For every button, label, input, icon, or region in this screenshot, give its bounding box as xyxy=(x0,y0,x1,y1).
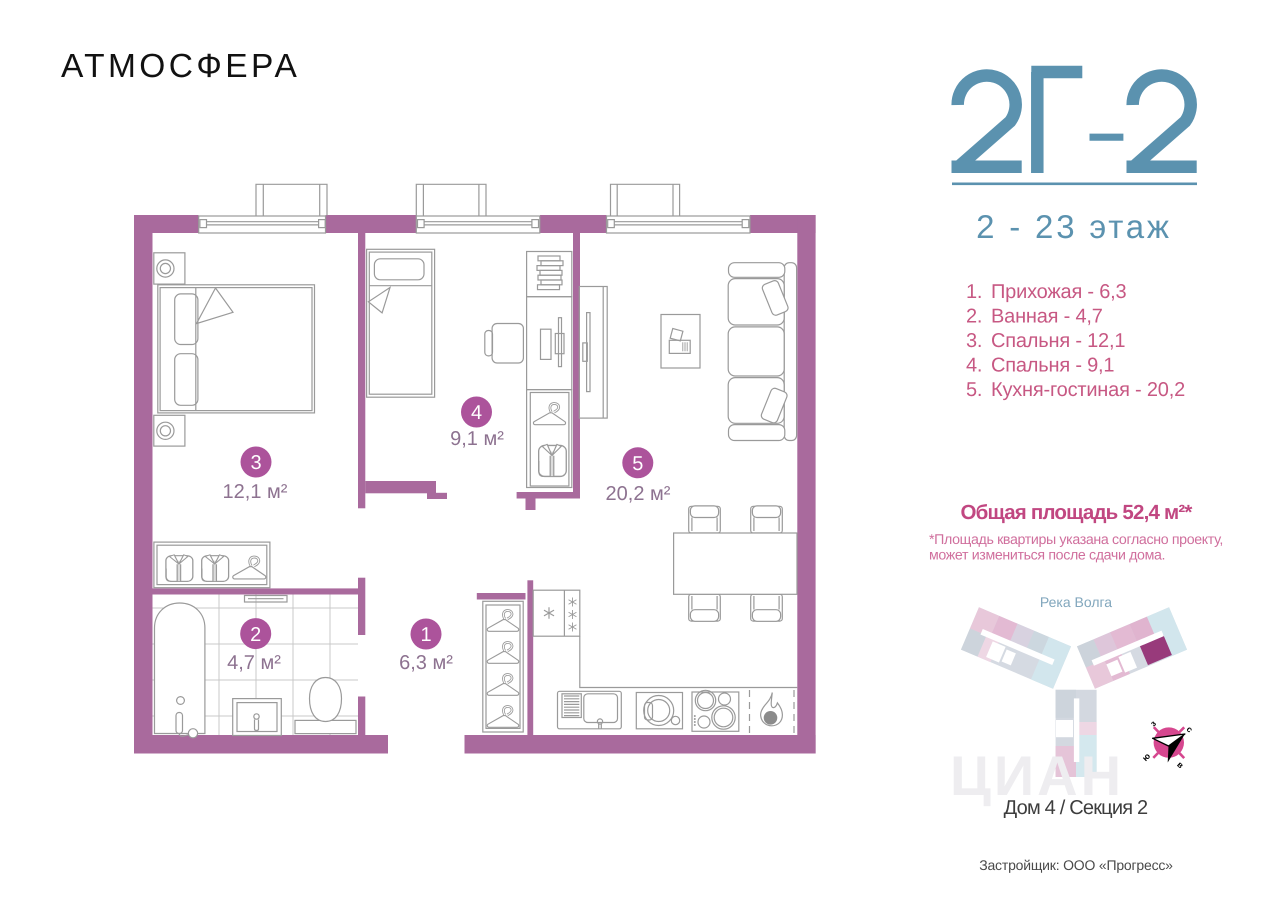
svg-text:4: 4 xyxy=(471,402,482,424)
svg-text:АТМОСФЕРА: АТМОСФЕРА xyxy=(61,48,300,85)
svg-text:Общая площадь 52,4 м²*: Общая площадь 52,4 м²* xyxy=(960,501,1192,524)
svg-text:12,1 м²: 12,1 м² xyxy=(223,481,288,503)
svg-text:Дом 4 / Секция 2: Дом 4 / Секция 2 xyxy=(1004,797,1148,819)
svg-text:2 - 23 этаж: 2 - 23 этаж xyxy=(976,208,1172,245)
svg-text:2: 2 xyxy=(250,624,261,646)
svg-text:3: 3 xyxy=(250,452,261,474)
svg-text:5.Кухня-гостиная - 20,2: 5.Кухня-гостиная - 20,2 xyxy=(966,379,1185,401)
svg-text:4,7 м²: 4,7 м² xyxy=(227,652,281,674)
svg-text:9,1 м²: 9,1 м² xyxy=(450,428,504,450)
svg-text:Река Волга: Река Волга xyxy=(1040,594,1112,610)
svg-text:1: 1 xyxy=(420,624,431,646)
svg-text:может измениться после сдачи д: может измениться после сдачи дома. xyxy=(929,548,1165,564)
svg-text:Застройщик: ООО «Прогресс»: Застройщик: ООО «Прогресс» xyxy=(979,857,1173,873)
svg-text:20,2 м²: 20,2 м² xyxy=(606,483,671,505)
svg-text:1.Прихожая - 6,3: 1.Прихожая - 6,3 xyxy=(966,281,1127,303)
svg-text:*Площадь квартиры указана согл: *Площадь квартиры указана согласно проек… xyxy=(929,532,1223,548)
svg-text:5: 5 xyxy=(632,453,643,475)
svg-text:6,3 м²: 6,3 м² xyxy=(399,652,453,674)
